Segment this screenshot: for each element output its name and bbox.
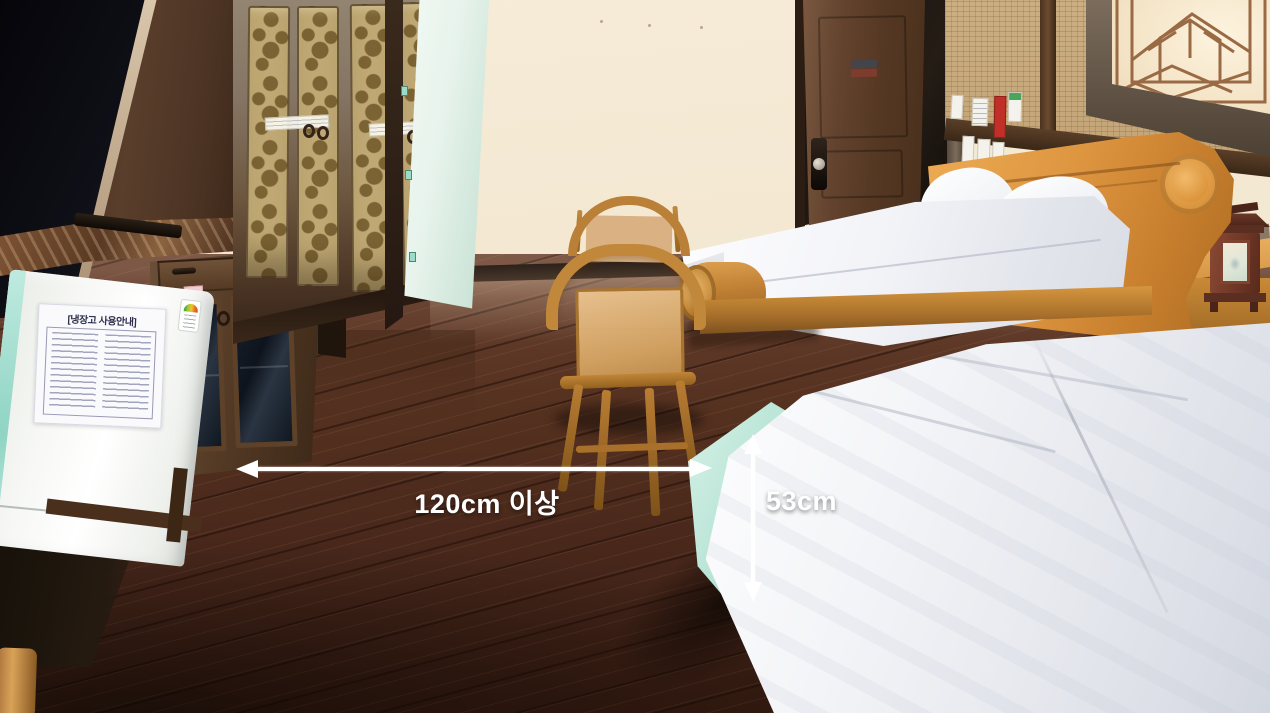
door-sign <box>851 60 877 69</box>
lantern-foot <box>1250 302 1258 312</box>
width-measurement-label: 120cm 이상 <box>236 482 712 521</box>
notice-text-column <box>49 332 98 410</box>
furniture-leg <box>0 647 37 713</box>
fridge-notice-paper: [냉장고 사용안내] <box>33 303 166 428</box>
front-chair-top-rail <box>546 244 706 330</box>
wall-mark <box>600 20 603 23</box>
energy-label-text-lines <box>183 314 197 329</box>
height-arrow-line <box>751 452 755 584</box>
energy-efficiency-label <box>177 299 201 333</box>
width-arrow-line <box>256 467 692 471</box>
wooden-armchairs <box>546 192 714 442</box>
door-hinge-icon <box>401 86 408 96</box>
wardrobe-damask-panel <box>246 6 290 278</box>
door-hinge-icon <box>409 252 416 262</box>
entrance-door <box>803 0 925 228</box>
height-arrowhead-down-icon <box>744 582 762 602</box>
height-arrowhead-up-icon <box>744 434 762 454</box>
wall-notice-card <box>1008 92 1023 122</box>
door-knob-icon <box>813 158 825 170</box>
cabinet-shelf-line <box>240 365 288 369</box>
hotel-room-photo: [냉장고 사용안내] <box>0 0 1270 713</box>
door-jamb <box>795 0 805 232</box>
wall-mark <box>648 24 651 27</box>
wall-mark <box>700 26 703 29</box>
wall-batten-vertical <box>1040 0 1056 134</box>
door-hinge-icon <box>405 170 412 180</box>
wardrobe-ring-handle-icon <box>303 124 315 138</box>
width-arrowhead-right-icon <box>690 459 712 477</box>
energy-arc-icon <box>184 303 199 313</box>
width-arrowhead-left-icon <box>236 460 258 478</box>
wall-notice-card <box>972 98 989 127</box>
wall-notice-card <box>950 95 963 120</box>
mattress-seam-line <box>1030 333 1169 613</box>
door-sign <box>851 69 877 78</box>
notice-text-column <box>102 334 151 412</box>
fridge-notice-text-block <box>43 327 157 420</box>
wardrobe-damask-panel <box>297 6 339 286</box>
door-panel-groove <box>821 149 904 198</box>
wardrobe-ring-handle-icon <box>317 126 329 140</box>
wardrobe <box>233 0 489 360</box>
bedding-fold-line <box>723 239 1100 287</box>
cabinet-ring-handle-icon <box>217 311 230 326</box>
wardrobe-door-jamb <box>385 0 403 330</box>
height-measurement-label: 53cm <box>766 486 837 517</box>
